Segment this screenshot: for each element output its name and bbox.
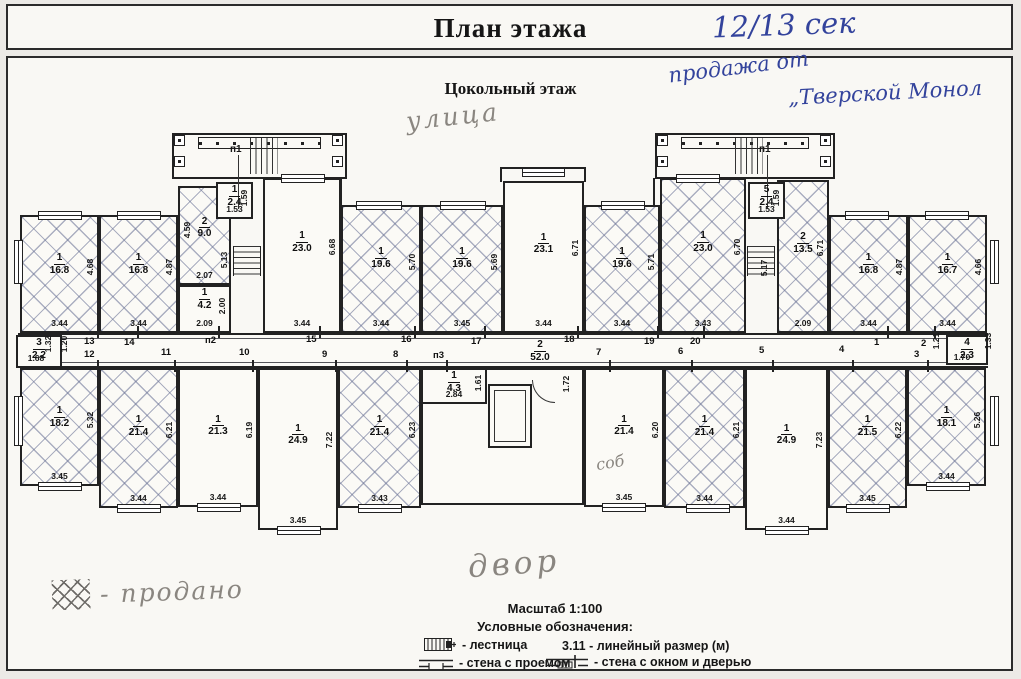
window-mullion-line bbox=[766, 530, 808, 531]
survey-point-label: 9 bbox=[322, 349, 327, 360]
legend-label-stairs: - лестница bbox=[462, 638, 527, 652]
stairs-icon bbox=[424, 637, 456, 652]
wall-segment bbox=[340, 178, 342, 206]
survey-point-tick bbox=[174, 360, 176, 372]
wall-segment bbox=[653, 178, 655, 206]
dimension-label: 1.72 bbox=[561, 366, 571, 402]
window-mullion-line bbox=[282, 178, 324, 179]
corridor-inner-wall-line bbox=[18, 338, 988, 339]
survey-point-label: 14 bbox=[124, 337, 135, 348]
window-mullion-line bbox=[994, 397, 995, 445]
window-mullion-line bbox=[523, 172, 564, 173]
dimension-label: 4.87 bbox=[894, 247, 904, 287]
dimension-label: 3.44 bbox=[524, 318, 564, 328]
survey-point-tick bbox=[927, 360, 929, 372]
window-mullion-line bbox=[359, 508, 401, 509]
handwritten-yard-label: двор bbox=[467, 543, 561, 585]
window bbox=[845, 211, 889, 220]
corridor-inner-wall-line bbox=[18, 362, 988, 363]
window bbox=[38, 211, 82, 220]
wall-segment bbox=[500, 167, 502, 182]
survey-point-tick bbox=[691, 360, 693, 372]
dimension-label: 3.44 bbox=[849, 318, 889, 328]
dimension-label: 2.00 bbox=[217, 286, 227, 326]
window-mullion-line bbox=[198, 507, 240, 508]
survey-point-label: 20 bbox=[690, 336, 701, 347]
survey-point-tick bbox=[406, 360, 408, 372]
dimension-label: 4.66 bbox=[973, 247, 983, 287]
dimension-label: 3.44 bbox=[767, 515, 807, 525]
window bbox=[117, 211, 161, 220]
window-mullion-line bbox=[357, 205, 401, 206]
survey-point-label: 5 bbox=[759, 345, 764, 356]
legend-item-stairs: - лестница bbox=[424, 637, 527, 652]
survey-point-label: 4 bbox=[839, 344, 844, 355]
dimension-label: 3.44 bbox=[685, 493, 725, 503]
dimension-label: 3.44 bbox=[282, 318, 322, 328]
survey-point-label: 7 bbox=[596, 347, 601, 358]
dimension-label: 3.44 bbox=[119, 318, 159, 328]
room-label: 252.0 bbox=[520, 339, 560, 363]
window bbox=[765, 526, 809, 535]
survey-point-label: 6 bbox=[678, 346, 683, 357]
legend-item-linear-dim: 3.11 - линейный размер (м) bbox=[562, 639, 729, 653]
window bbox=[601, 201, 645, 210]
survey-point-tick bbox=[484, 326, 486, 338]
window-mullion-line bbox=[18, 397, 19, 445]
dimension-label: 6.21 bbox=[164, 410, 174, 450]
window bbox=[281, 174, 325, 183]
survey-point-tick bbox=[97, 326, 99, 338]
survey-point-tick bbox=[97, 360, 99, 372]
survey-point-label: 16 bbox=[401, 334, 412, 345]
dimension-label: 3.45 bbox=[40, 471, 80, 481]
dimension-label: 3.45 bbox=[442, 318, 482, 328]
window bbox=[38, 482, 82, 491]
window bbox=[356, 201, 402, 210]
window bbox=[990, 240, 999, 284]
survey-point-label: 2 bbox=[921, 338, 926, 349]
dimension-label: 5.69 bbox=[489, 242, 499, 282]
window-mullion-line bbox=[118, 215, 160, 216]
survey-point-label: 18 bbox=[564, 334, 575, 345]
dimension-label: 5.32 bbox=[85, 400, 95, 440]
window-mullion-line bbox=[18, 241, 19, 283]
dimension-label: 3.43 bbox=[683, 318, 723, 328]
window bbox=[846, 504, 890, 513]
window bbox=[277, 526, 321, 535]
window bbox=[522, 168, 565, 177]
survey-point-label: 1 bbox=[874, 337, 879, 348]
internal-stairs bbox=[233, 246, 261, 276]
window bbox=[440, 201, 486, 210]
dimension-label: 3.44 bbox=[602, 318, 642, 328]
window bbox=[686, 504, 730, 513]
survey-point-tick bbox=[657, 326, 659, 338]
dimension-label: 7.23 bbox=[814, 420, 824, 460]
dimension-label: 6.23 bbox=[407, 410, 417, 450]
window bbox=[990, 396, 999, 446]
porch-post bbox=[332, 135, 343, 146]
dimension-label: 2.84 bbox=[434, 389, 474, 399]
window bbox=[926, 482, 970, 491]
window-mullion-line bbox=[994, 241, 995, 283]
wall-opening-icon bbox=[419, 657, 453, 670]
wall-window-door-icon bbox=[546, 654, 588, 670]
dimension-label: 6.70 bbox=[732, 227, 742, 267]
dimension-label: 3.44 bbox=[119, 493, 159, 503]
survey-point-tick bbox=[609, 360, 611, 372]
survey-point-label: 3 bbox=[914, 349, 919, 360]
survey-point-label: п3 bbox=[433, 350, 444, 361]
dimension-label: 1.21 bbox=[931, 323, 941, 359]
porch-post bbox=[820, 156, 831, 167]
dimension-label: 1.20 bbox=[59, 326, 69, 362]
survey-point-label: 19 bbox=[644, 336, 655, 347]
dimension-label: 3.45 bbox=[604, 492, 644, 502]
window bbox=[197, 503, 241, 512]
survey-point-label: 10 bbox=[239, 347, 250, 358]
survey-point-label: п2 bbox=[205, 335, 216, 346]
window bbox=[358, 504, 402, 513]
legend-heading: Условные обозначения: bbox=[380, 619, 730, 634]
window-mullion-line bbox=[39, 486, 81, 487]
dimension-label: 1.70 bbox=[944, 352, 980, 362]
scale-note: Масштаб 1:100 bbox=[380, 601, 730, 616]
scanned-floor-plan-page: План этажа Цокольный этаж 12/13 сек прод… bbox=[0, 0, 1021, 679]
dimension-label: 1.59 bbox=[771, 178, 781, 218]
dimension-label: 3.45 bbox=[278, 515, 318, 525]
dimension-label: 1.61 bbox=[473, 363, 483, 403]
window-mullion-line bbox=[602, 205, 644, 206]
window-mullion-line bbox=[687, 508, 729, 509]
dimension-label: 5.70 bbox=[407, 242, 417, 282]
window bbox=[925, 211, 969, 220]
window bbox=[117, 504, 161, 513]
hatch-sample-icon bbox=[52, 579, 91, 610]
survey-point-tick bbox=[414, 326, 416, 338]
page-title: План этажа bbox=[0, 13, 1021, 44]
survey-point-tick bbox=[577, 326, 579, 338]
survey-point-label: 17 bbox=[471, 336, 482, 347]
porch-post bbox=[820, 135, 831, 146]
dimension-label: 5.71 bbox=[646, 242, 656, 282]
dimension-label: 4.87 bbox=[164, 247, 174, 287]
dimension-label: 1.32 bbox=[43, 326, 53, 362]
porch-post bbox=[657, 156, 668, 167]
entrance-stairs bbox=[250, 138, 278, 174]
sold-note-text: - продано bbox=[100, 574, 245, 608]
window-mullion-line bbox=[603, 507, 645, 508]
dimension-label: 6.21 bbox=[731, 410, 741, 450]
window-mullion-line bbox=[39, 215, 81, 216]
window-mullion-line bbox=[927, 486, 969, 487]
survey-point-label: 13 bbox=[84, 336, 95, 347]
lift-shaft bbox=[488, 384, 532, 448]
window-mullion-line bbox=[118, 508, 160, 509]
porch-post bbox=[174, 156, 185, 167]
survey-point-tick bbox=[852, 360, 854, 372]
dimension-label: 1.59 bbox=[239, 178, 249, 218]
dimension-label: 4.59 bbox=[182, 210, 192, 250]
legend-label-linear-dim: 3.11 - линейный размер (м) bbox=[562, 639, 729, 653]
porch-post bbox=[657, 135, 668, 146]
window bbox=[602, 503, 646, 512]
dimension-label: 4.68 bbox=[85, 247, 95, 287]
window-mullion-line bbox=[441, 205, 485, 206]
survey-point-tick bbox=[335, 360, 337, 372]
dimension-label: 3.44 bbox=[361, 318, 401, 328]
survey-point-label: 8 bbox=[393, 349, 398, 360]
window-mullion-line bbox=[926, 215, 968, 216]
survey-point-label: 12 bbox=[84, 349, 95, 360]
dimension-label: 6.68 bbox=[327, 227, 337, 267]
legend-item-wall-window-door: - стена с окном и дверью bbox=[546, 654, 751, 670]
dimension-label: 6.19 bbox=[244, 410, 254, 450]
dimension-label: 3.45 bbox=[848, 493, 888, 503]
dimension-label: 6.71 bbox=[570, 228, 580, 268]
handwritten-section-note: 12/13 сек bbox=[711, 6, 856, 45]
dimension-label: 5.13 bbox=[219, 242, 229, 278]
wall-segment bbox=[584, 167, 586, 182]
porch-post bbox=[174, 135, 185, 146]
stair-label: п1 bbox=[230, 144, 242, 155]
window-mullion-line bbox=[846, 215, 888, 216]
survey-point-tick bbox=[252, 360, 254, 372]
window-mullion-line bbox=[847, 508, 889, 509]
dimension-label: 6.22 bbox=[893, 410, 903, 450]
porch-post bbox=[332, 156, 343, 167]
dimension-label: 3.44 bbox=[198, 492, 238, 502]
dimension-label: 5.26 bbox=[972, 400, 982, 440]
dimension-label: 7.22 bbox=[324, 420, 334, 460]
survey-point-tick bbox=[772, 360, 774, 372]
window bbox=[676, 174, 720, 183]
dimension-label: 3.43 bbox=[360, 493, 400, 503]
window-mullion-line bbox=[677, 178, 719, 179]
survey-point-label: 15 bbox=[306, 334, 317, 345]
dimension-label: 3.44 bbox=[927, 471, 967, 481]
survey-point-label: 11 bbox=[161, 347, 171, 358]
dimension-label: 1.33 bbox=[983, 323, 993, 359]
dimension-label: 5.17 bbox=[759, 250, 769, 286]
dimension-label: 6.20 bbox=[650, 410, 660, 450]
legend-label-wall-window-door: - стена с окном и дверью bbox=[594, 655, 751, 669]
dimension-label: 6.71 bbox=[815, 228, 825, 268]
dimension-label: 2.09 bbox=[783, 318, 823, 328]
window-mullion-line bbox=[278, 530, 320, 531]
stair-label: п1 bbox=[759, 144, 771, 155]
